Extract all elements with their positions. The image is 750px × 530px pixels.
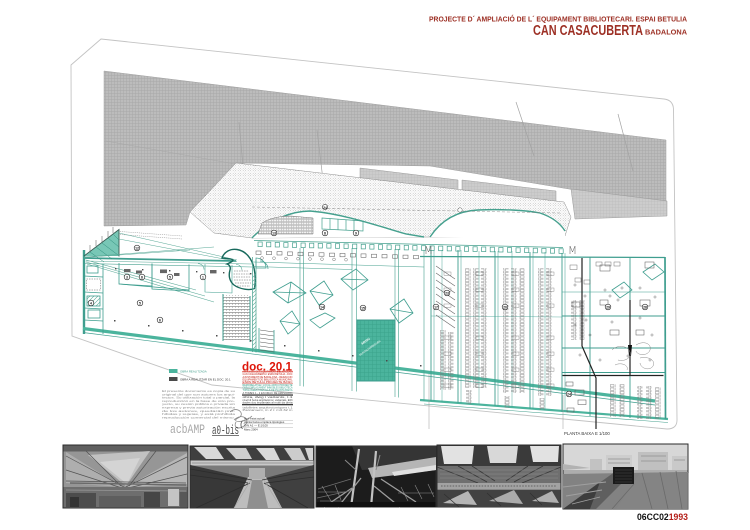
- svg-text:OBRA A REALITZAR EN EL DOC. 20: OBRA A REALITZAR EN EL DOC. 20.1: [180, 378, 231, 382]
- svg-text:Parcament, m 2 i: m3.32 m: Parcament, m 2 i: m3.32 m: [243, 409, 293, 412]
- svg-text:reproducción comercial del mis: reproducción comercial del mismo.: [162, 415, 235, 419]
- svg-text:9: 9: [355, 231, 357, 235]
- svg-text:8: 8: [324, 231, 326, 235]
- svg-text:24: 24: [567, 392, 571, 396]
- svg-text:20: 20: [503, 305, 507, 309]
- svg-text:17: 17: [434, 305, 438, 309]
- svg-text:15: 15: [361, 306, 365, 310]
- svg-text:24: 24: [323, 206, 327, 210]
- svg-text:12: 12: [135, 246, 139, 250]
- svg-text:8: 8: [141, 275, 143, 279]
- svg-text:BADALONA: BADALONA: [645, 28, 688, 37]
- svg-text:6: 6: [159, 318, 161, 322]
- svg-text:5: 5: [139, 301, 141, 305]
- svg-text:29: 29: [606, 305, 610, 309]
- svg-text:Marc 2004: Marc 2004: [244, 428, 258, 432]
- svg-text:(: (: [240, 419, 243, 429]
- svg-text:14: 14: [320, 305, 324, 309]
- svg-text:4: 4: [90, 301, 92, 305]
- svg-text:3: 3: [126, 275, 128, 279]
- svg-text:A TOMES 1 - 2 EN DRAC DE AMPLI: A TOMES 1 - 2 EN DRAC DE AMPLIACIO: [243, 392, 293, 395]
- svg-text:1: 1: [202, 275, 204, 279]
- svg-text:OBRA REALITZADA: OBRA REALITZADA: [180, 370, 207, 374]
- svg-text:dades doc implantats al multi: dades doc implantats al multi da dreta: [243, 401, 294, 404]
- svg-text:13: 13: [272, 231, 276, 235]
- svg-text:acbAMP: acbAMP: [170, 423, 205, 437]
- svg-text:a0-bis: a0-bis: [212, 424, 239, 438]
- svg-text:CAN CASACUBERTA: CAN CASACUBERTA: [533, 23, 643, 39]
- svg-text:5: 5: [169, 275, 171, 279]
- svg-text:06CC021993: 06CC021993: [637, 512, 688, 522]
- svg-text:PLANTA BAIXA E 1/100: PLANTA BAIXA E 1/100: [564, 431, 610, 436]
- svg-text:28: 28: [643, 305, 647, 309]
- svg-text:23: 23: [445, 291, 449, 295]
